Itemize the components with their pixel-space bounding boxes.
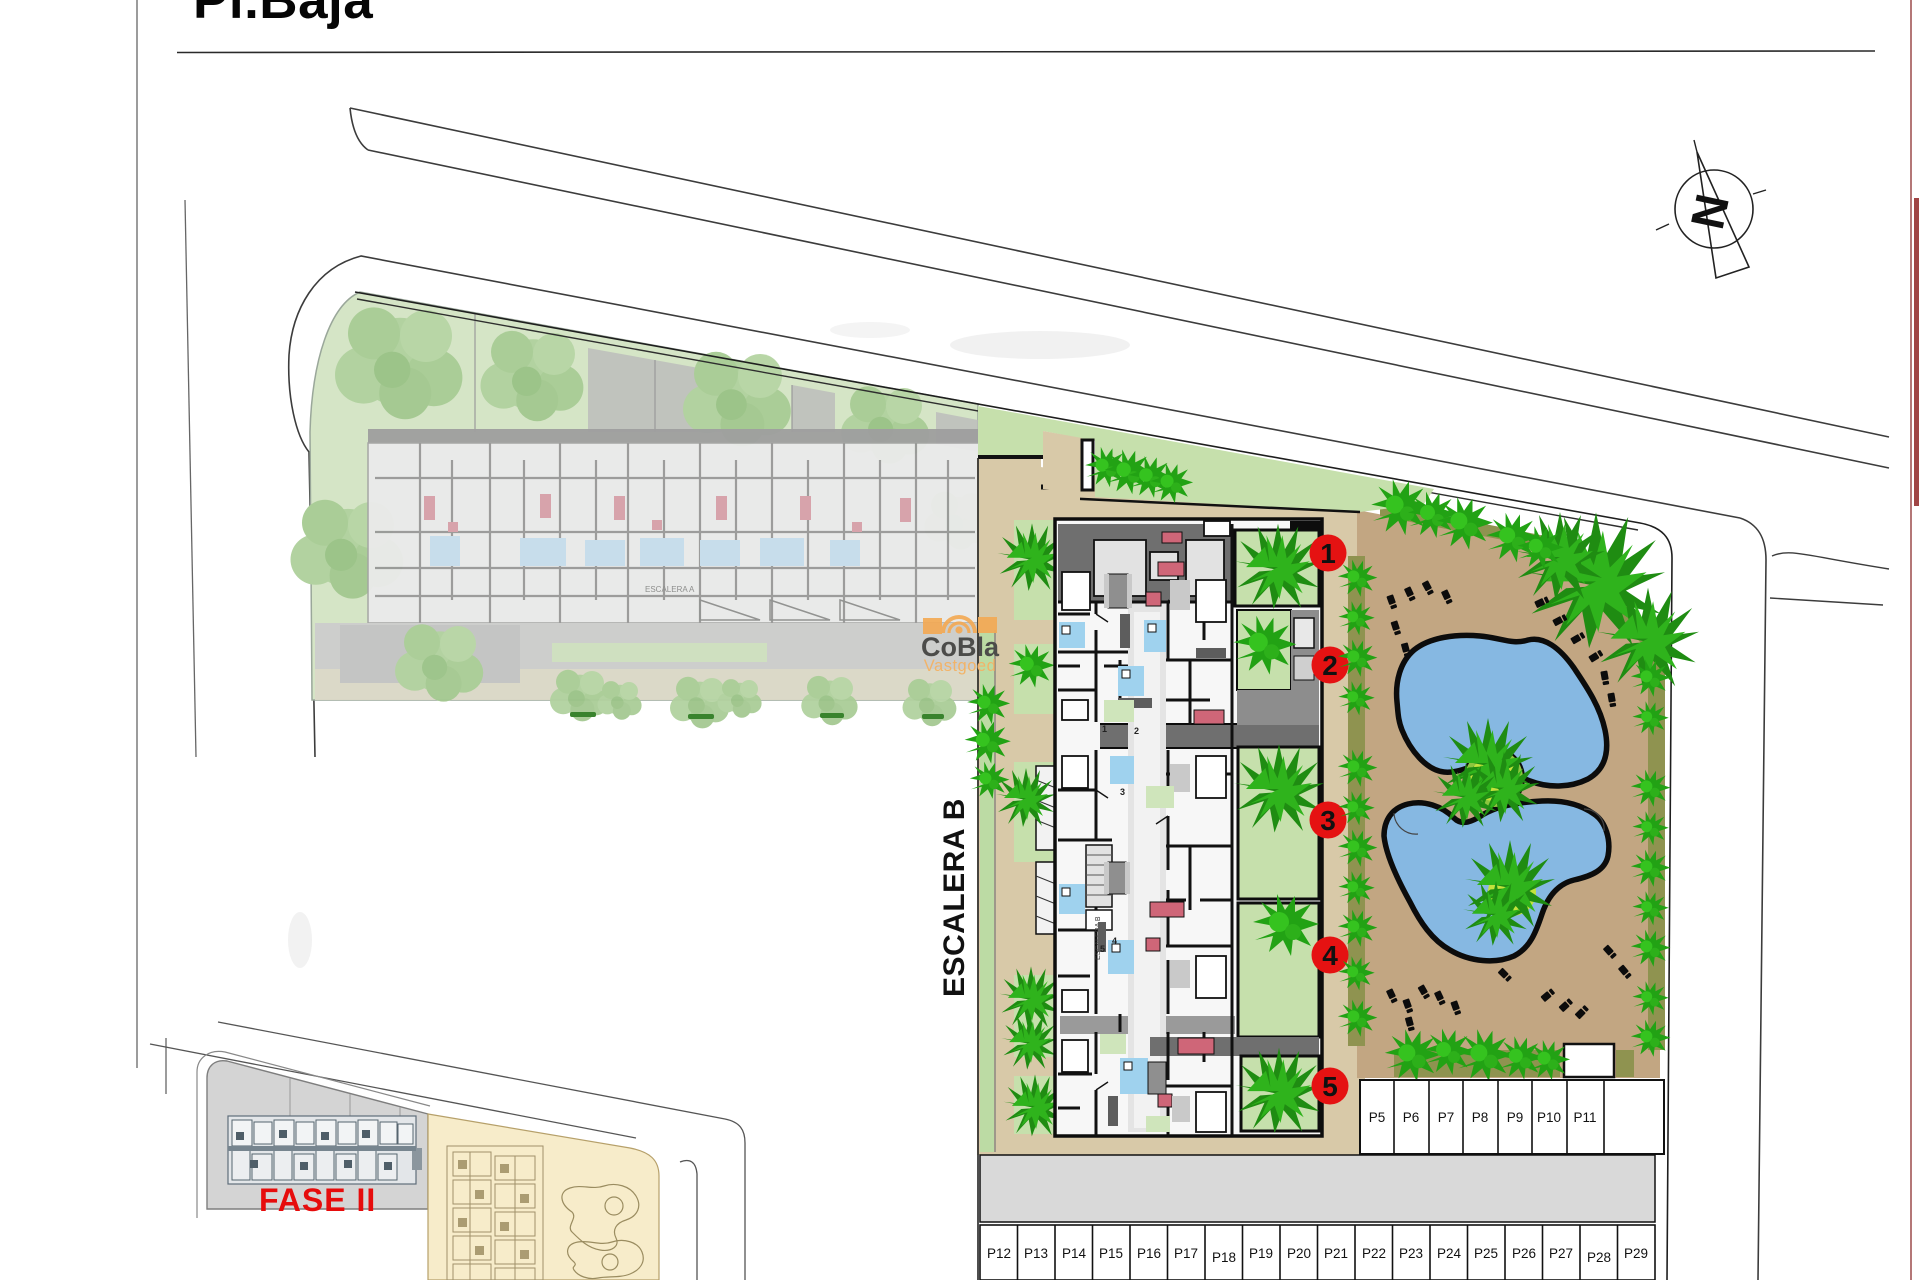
svg-text:3: 3 [1120,787,1125,797]
svg-text:P9: P9 [1507,1110,1524,1125]
svg-text:P13: P13 [1024,1246,1048,1261]
svg-text:P7: P7 [1438,1110,1455,1125]
svg-text:4: 4 [1112,936,1117,946]
svg-text:P18: P18 [1212,1250,1236,1265]
svg-text:P5: P5 [1369,1110,1386,1125]
svg-text:4: 4 [1322,940,1338,971]
svg-text:3: 3 [1320,805,1336,836]
svg-text:P26: P26 [1512,1246,1536,1261]
svg-text:P8: P8 [1472,1110,1489,1125]
svg-text:P19: P19 [1249,1246,1273,1261]
svg-text:P21: P21 [1324,1246,1348,1261]
svg-text:P24: P24 [1437,1246,1462,1261]
svg-text:P20: P20 [1287,1246,1311,1261]
svg-text:P14: P14 [1062,1246,1087,1261]
svg-text:P10: P10 [1537,1110,1561,1125]
svg-text:5: 5 [1322,1071,1338,1102]
svg-text:2: 2 [1134,726,1139,736]
svg-text:2: 2 [1322,650,1338,681]
svg-text:P16: P16 [1137,1246,1161,1261]
svg-text:1: 1 [1320,538,1336,569]
svg-text:P29: P29 [1624,1246,1648,1261]
svg-text:P12: P12 [987,1246,1011,1261]
svg-text:P22: P22 [1362,1246,1386,1261]
svg-text:P27: P27 [1549,1246,1573,1261]
svg-text:ESCALERA B: ESCALERA B [938,798,971,997]
svg-text:P25: P25 [1474,1246,1498,1261]
svg-text:1: 1 [1102,724,1107,734]
svg-text:ESCALERA A: ESCALERA A [645,585,695,594]
svg-text:P11: P11 [1573,1110,1596,1125]
svg-text:P15: P15 [1099,1246,1123,1261]
svg-text:FASE II: FASE II [259,1182,376,1218]
svg-text:P17: P17 [1174,1246,1198,1261]
svg-text:P28: P28 [1587,1250,1611,1265]
svg-text:P23: P23 [1399,1246,1423,1261]
svg-text:Pl.Baja: Pl.Baja [193,0,373,30]
svg-text:Vastgoed: Vastgoed [924,657,997,675]
svg-text:P6: P6 [1403,1110,1420,1125]
svg-text:5: 5 [1100,944,1105,954]
